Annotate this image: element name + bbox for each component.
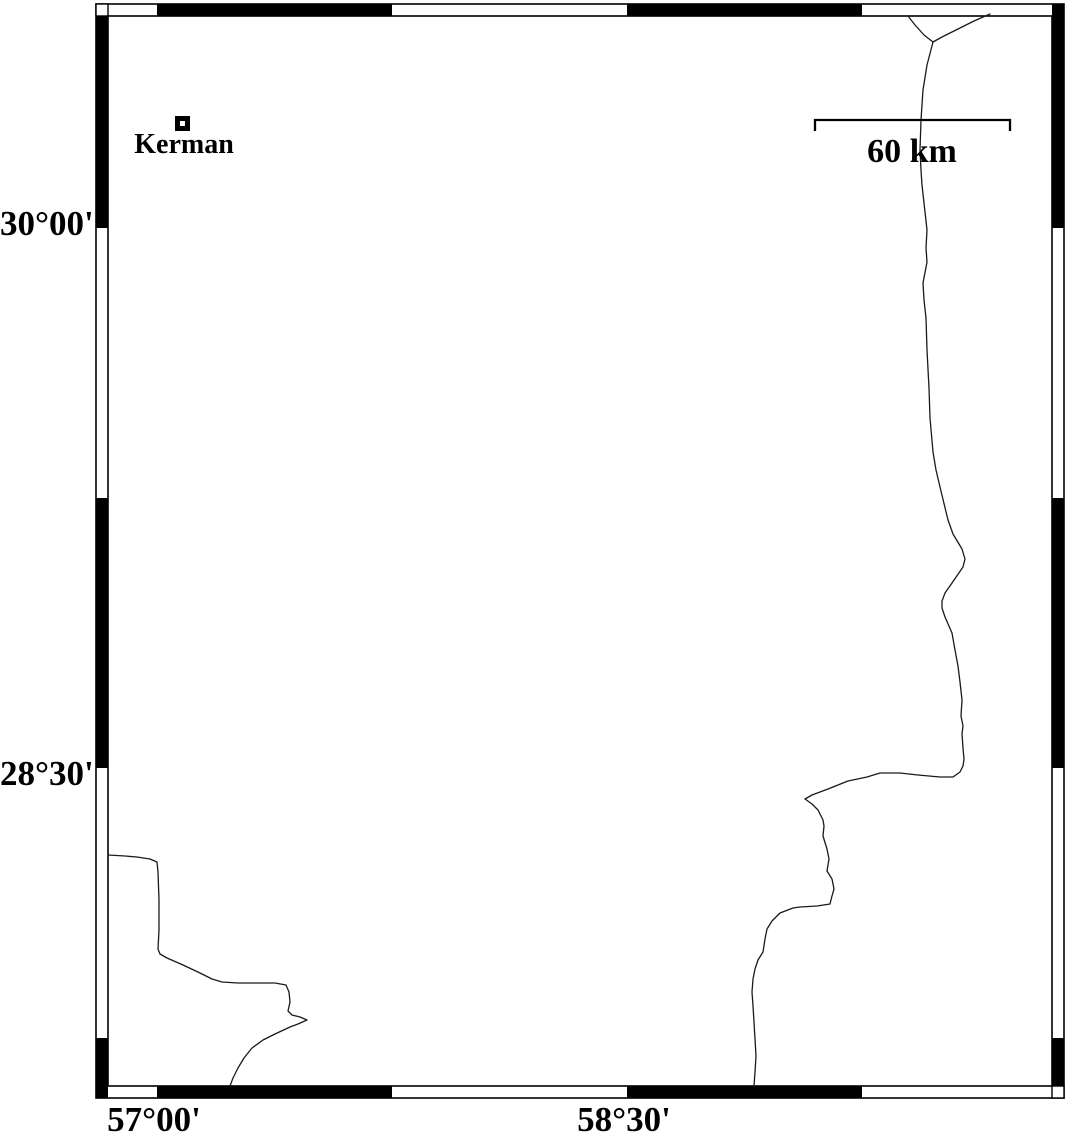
road-branch-west xyxy=(908,16,933,42)
road-main xyxy=(752,42,965,1086)
frame-segment xyxy=(1052,498,1064,768)
scale-bar-label: 60 km xyxy=(832,135,992,169)
frame-segment xyxy=(157,1086,392,1098)
map-svg xyxy=(0,0,1066,1136)
scale-bar-bracket xyxy=(815,120,1010,131)
frame-segment xyxy=(627,1086,862,1098)
frame-segment xyxy=(96,16,108,228)
frame-corner-square xyxy=(96,4,108,16)
scale-bar xyxy=(815,120,1010,131)
frame-segment xyxy=(96,498,108,768)
frame-segment xyxy=(627,4,862,16)
x-axis-label-58-30: 58°30' xyxy=(544,1102,704,1136)
road-lines xyxy=(108,14,990,1086)
frame-segment xyxy=(157,4,392,16)
x-axis-label-57-00: 57°00' xyxy=(74,1102,234,1136)
y-axis-label-30-00: 30°00' xyxy=(0,206,88,241)
frame-segment xyxy=(1052,4,1064,228)
town-marker-inner xyxy=(180,121,185,126)
frame-segment xyxy=(96,1038,108,1098)
road-branch-east xyxy=(933,14,990,42)
frame-corner-square xyxy=(1052,1086,1064,1098)
frame-inner-border xyxy=(108,16,1052,1086)
frame-segment xyxy=(1052,1038,1064,1086)
road-southwest xyxy=(108,855,307,1086)
y-axis-label-28-30: 28°30' xyxy=(0,756,88,791)
map-figure: 30°00' 28°30' 57°00' 58°30' 60 km Kerman xyxy=(0,0,1066,1136)
place-label-kerman: Kerman xyxy=(104,131,264,159)
